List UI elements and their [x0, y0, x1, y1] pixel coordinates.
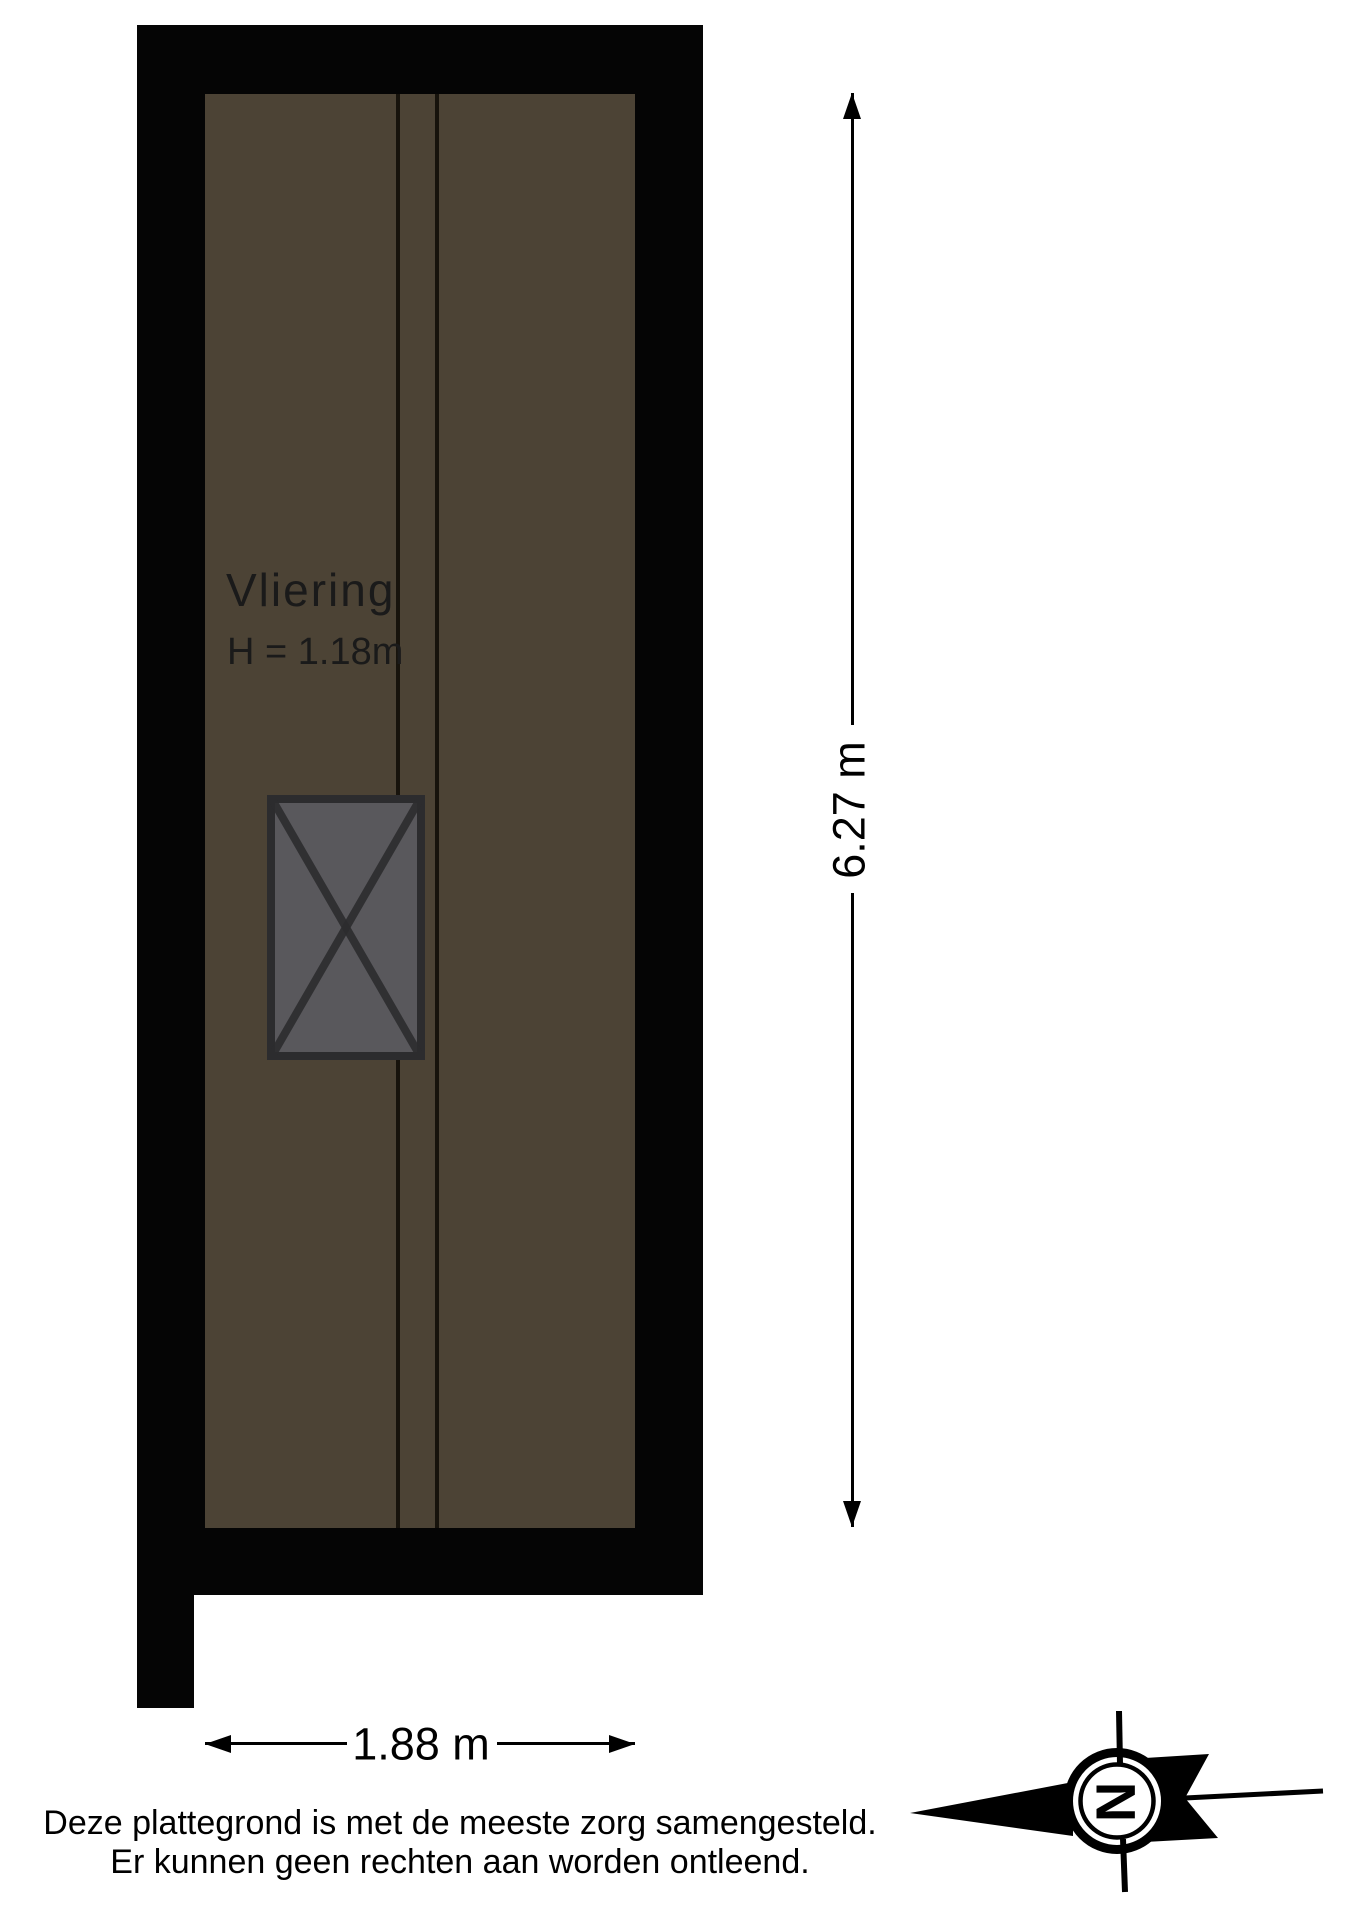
compass-tick-bottom	[1123, 1839, 1125, 1892]
dimension-arrow-down-icon	[843, 1501, 861, 1527]
room-height-label: H = 1.18m	[227, 633, 403, 671]
compass-north-blade	[910, 1782, 1073, 1836]
dimension-arrow-up-icon	[843, 93, 861, 119]
stair-hatch-box	[267, 795, 425, 1060]
vertical-dimension-label: 6.27 m	[827, 741, 872, 879]
dimension-arrow-right-icon	[609, 1735, 635, 1753]
wall-stub-bottom-left	[137, 1560, 194, 1708]
disclaimer-line-2: Er kunnen geen rechten aan worden ontlee…	[0, 1843, 920, 1882]
vertical-dimension-line-upper	[851, 93, 854, 725]
room-label: Vliering	[226, 567, 395, 613]
vertical-dimension-line-lower	[851, 893, 854, 1527]
disclaimer-line-1: Deze plattegrond is met de meeste zorg s…	[0, 1804, 920, 1843]
compass-tick-top	[1119, 1711, 1120, 1764]
roof-ridge-line-right	[435, 94, 439, 1528]
compass-east-line	[1185, 1791, 1323, 1798]
compass-north-label: N	[1085, 1782, 1148, 1822]
dimension-arrow-left-icon	[205, 1735, 231, 1753]
horizontal-dimension-label: 1.88 m	[352, 1722, 490, 1767]
floorplan-page: Vliering H = 1.18m 6.27 m 1.88 m Deze pl…	[0, 0, 1358, 1920]
disclaimer: Deze plattegrond is met de meeste zorg s…	[0, 1804, 920, 1882]
north-arrow-compass: N	[890, 1680, 1340, 1910]
